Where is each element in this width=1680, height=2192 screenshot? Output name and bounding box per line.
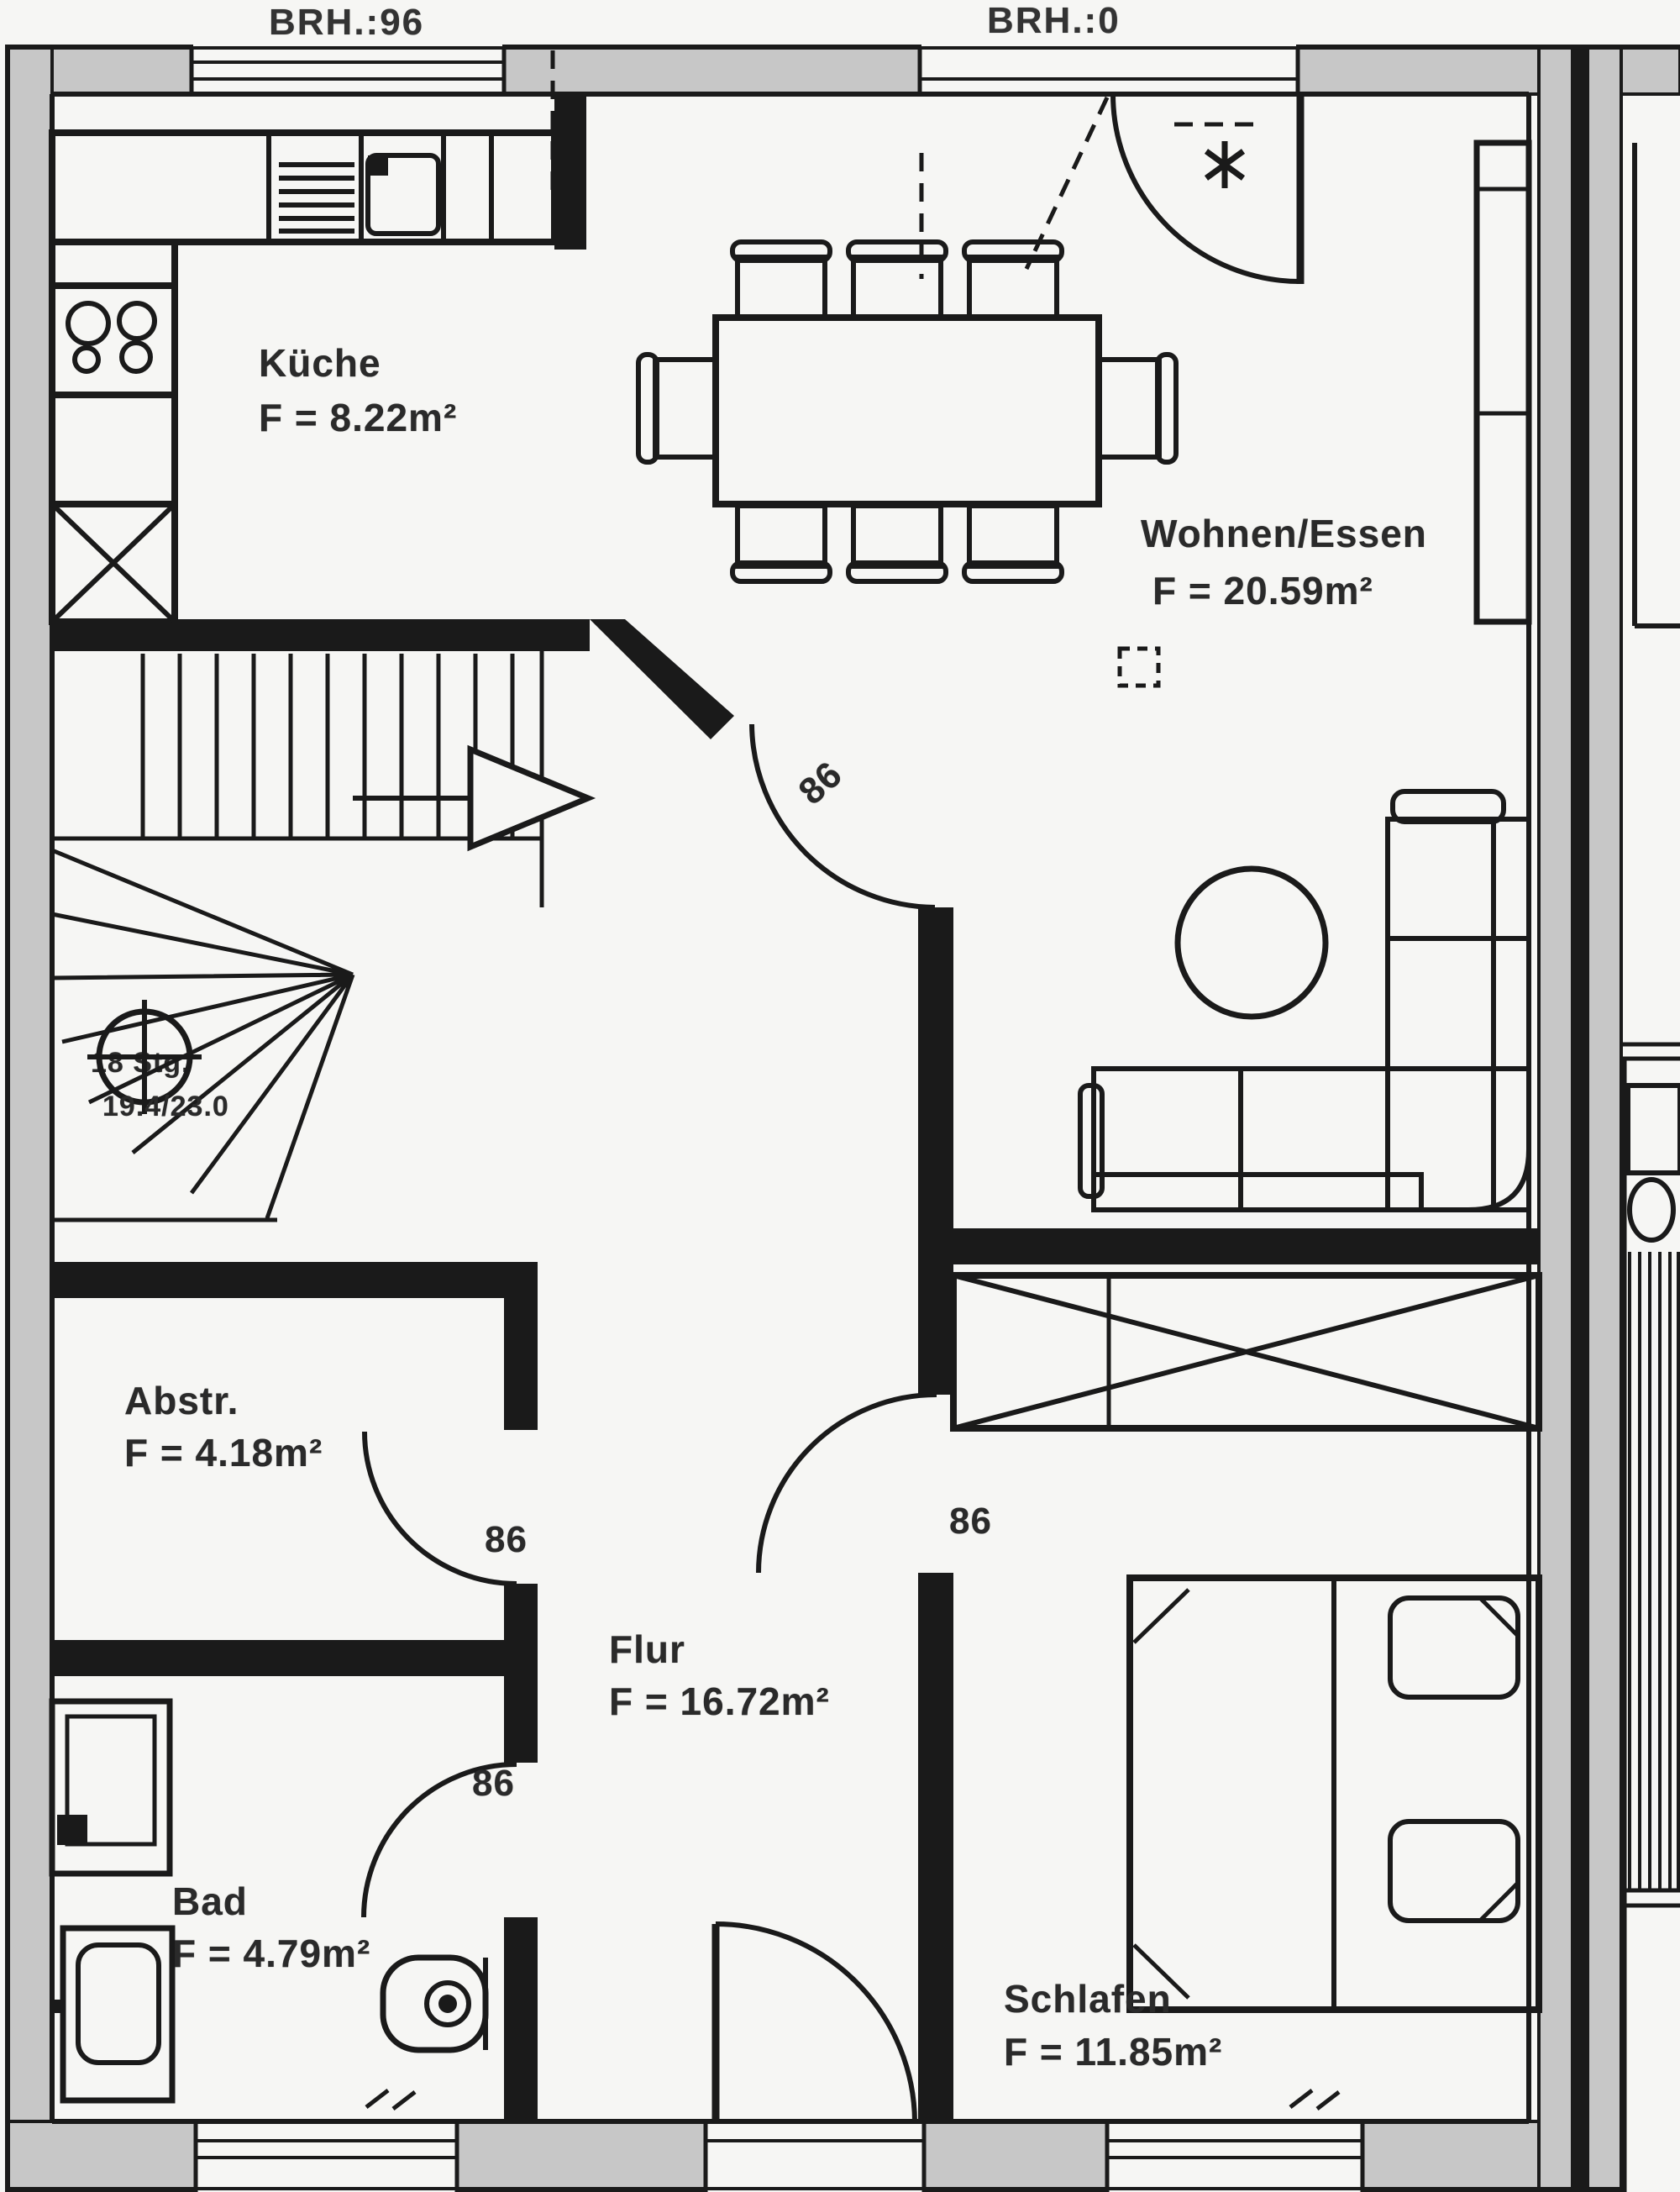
room-label-flur: Flur <box>609 1627 685 1672</box>
window-annotation-brh0: BRH.:0 <box>987 0 1121 42</box>
dining-furniture <box>638 242 1176 581</box>
room-label-schlafen: Schlafen <box>1004 1976 1172 2021</box>
room-area-abstr: F = 4.18m² <box>124 1430 323 1475</box>
staircase <box>52 651 588 1220</box>
room-label-bad: Bad <box>172 1879 248 1924</box>
asterisk-mark <box>1206 141 1243 188</box>
room-area-wohnen: F = 20.59m² <box>1152 568 1373 613</box>
room-label-abstr: Abstr. <box>124 1378 239 1423</box>
window-annotation-brh96: BRH.:96 <box>269 2 424 44</box>
wall-face-lines <box>7 46 1680 2192</box>
room-area-flur: F = 16.72m² <box>609 1679 830 1724</box>
room-area-bad: F = 4.79m² <box>172 1931 370 1976</box>
door-width-bathroom: 86 <box>472 1763 515 1805</box>
living-furniture <box>1080 143 1529 1210</box>
room-label-kueche: Küche <box>259 340 381 386</box>
floor-plan: 18 Stg. <box>0 0 1680 2192</box>
bedroom-furniture <box>953 1275 1539 2010</box>
room-area-schlafen: F = 11.85m² <box>1004 2029 1222 2074</box>
floor-plan-drawing <box>0 0 1680 2192</box>
door-width-storage: 86 <box>485 1519 528 1561</box>
party-wall-centerline <box>1571 46 1589 2192</box>
room-area-kueche: F = 8.22m² <box>259 395 457 440</box>
room-label-wohnen: Wohnen/Essen <box>1141 511 1427 556</box>
stairs-rise-run-label: 19.4/23.0 <box>102 1091 229 1123</box>
door-width-bedroom: 86 <box>949 1501 992 1543</box>
exterior-walls <box>7 46 1680 2192</box>
neighbor-structures <box>1621 143 1680 2192</box>
bathroom-fixtures <box>52 1701 486 2100</box>
